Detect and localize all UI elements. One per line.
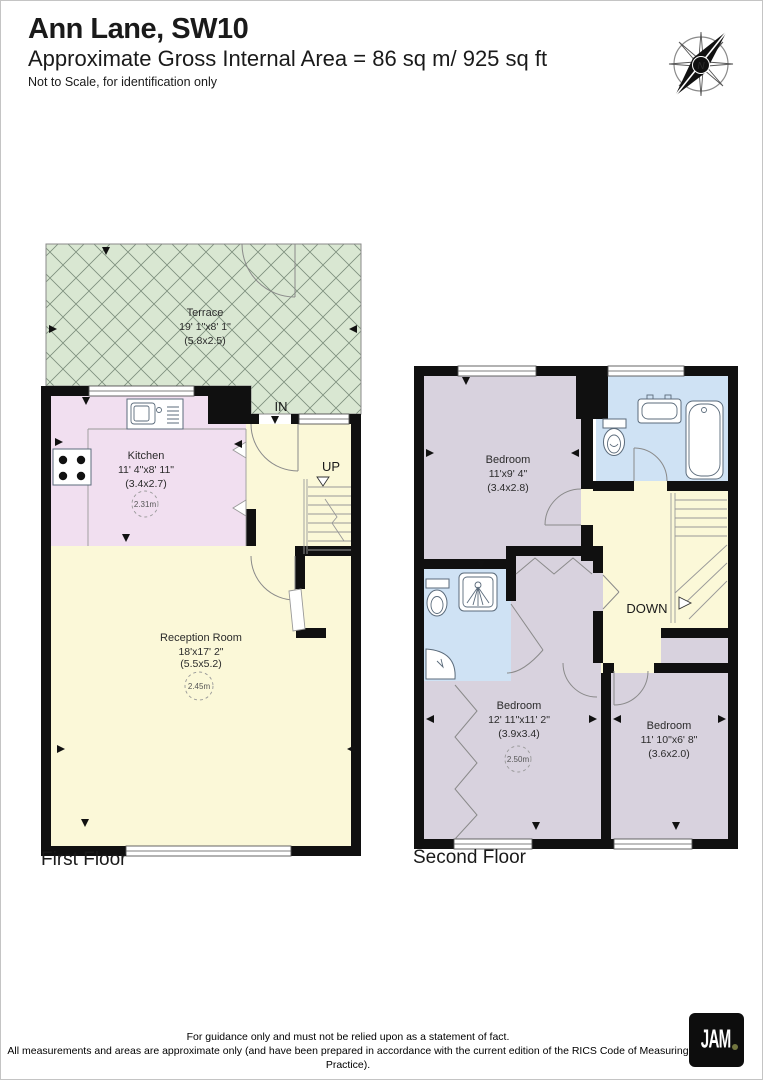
reception-dims-ft: 18'x17' 2" bbox=[178, 646, 223, 658]
bedroom1-window bbox=[458, 366, 536, 376]
terrace-dims-m: (5.8x2.5) bbox=[184, 335, 225, 347]
reception-window bbox=[126, 846, 291, 856]
bedroom1-dims-ft: 11'x9' 4" bbox=[489, 468, 528, 480]
scale-note: Not to Scale, for identification only bbox=[28, 75, 217, 89]
kitchen-name: Kitchen bbox=[128, 450, 165, 462]
room-reception bbox=[51, 546, 351, 846]
bedroom3-name: Bedroom bbox=[647, 720, 692, 732]
bedroom3-window bbox=[614, 839, 692, 849]
basin-icon bbox=[638, 395, 681, 423]
bedroom2-name: Bedroom bbox=[497, 700, 542, 712]
bedroom3-dims-m: (3.6x2.0) bbox=[648, 748, 689, 760]
sink-icon bbox=[127, 399, 183, 429]
terrace-dims-ft: 19' 1"x8' 1" bbox=[179, 321, 231, 333]
bedroom1-dims-m: (3.4x2.8) bbox=[487, 482, 528, 494]
kitchen-height: 2.31m bbox=[134, 500, 157, 509]
reception-height: 2.45m bbox=[188, 682, 211, 691]
toilet2-icon bbox=[426, 579, 449, 616]
footer-disclaimer: For guidance only and must not be relied… bbox=[1, 1030, 695, 1072]
hob-icon bbox=[53, 449, 91, 485]
stairs-down-label: DOWN bbox=[626, 601, 667, 616]
compass-north-label: N bbox=[697, 61, 705, 72]
second-floor-plan: Bedroom 11'x9' 4" (3.4x2.8) DOWN Bedroom… bbox=[409, 361, 743, 853]
terrace-name: Terrace bbox=[187, 307, 224, 319]
compass-icon: N bbox=[665, 23, 739, 103]
floorplan-page: Ann Lane, SW10 Approximate Gross Interna… bbox=[0, 0, 763, 1080]
footer-line2: All measurements and areas are approxima… bbox=[1, 1044, 695, 1072]
bath-icon bbox=[686, 401, 723, 479]
page-subtitle: Approximate Gross Internal Area = 86 sq … bbox=[28, 46, 547, 72]
stairs-up-label: UP bbox=[322, 459, 340, 474]
shower-icon bbox=[459, 573, 497, 611]
bedroom3-dims-ft: 11' 10"x6' 8" bbox=[641, 734, 698, 746]
kitchen-dims-ft: 11' 4"x8' 11" bbox=[118, 464, 174, 476]
entry-label: IN bbox=[275, 399, 288, 414]
bedroom2-dims-ft: 12' 11"x11' 2" bbox=[488, 714, 550, 726]
bedroom1-name: Bedroom bbox=[486, 454, 531, 466]
page-title: Ann Lane, SW10 bbox=[28, 13, 248, 46]
jam-logo: JAM bbox=[689, 1013, 744, 1067]
second-floor-label: Second Floor bbox=[413, 847, 526, 869]
first-floor-plan: Terrace 19' 1"x8' 1" (5.8x2.5) IN UP Kit… bbox=[37, 239, 377, 861]
bathroom-window bbox=[608, 366, 684, 376]
bedroom2-height: 2.50m bbox=[507, 755, 530, 764]
bedroom2-dims-m: (3.9x3.4) bbox=[498, 728, 539, 740]
first-floor-label: First Floor bbox=[41, 849, 127, 871]
entry-window bbox=[299, 414, 349, 424]
jam-logo-text: JAM bbox=[701, 1025, 731, 1055]
room-vestibule bbox=[506, 546, 603, 663]
reception-name: Reception Room bbox=[160, 632, 242, 644]
room-bedroom2-entry bbox=[511, 663, 601, 681]
footer-line1: For guidance only and must not be relied… bbox=[1, 1030, 695, 1044]
toilet-icon bbox=[603, 419, 626, 456]
kitchen-dims-m: (3.4x2.7) bbox=[125, 478, 166, 490]
jam-logo-dot bbox=[732, 1044, 738, 1050]
reception-dims-m: (5.5x5.2) bbox=[180, 658, 221, 670]
kitchen-window bbox=[89, 386, 194, 396]
room-bedroom3-top bbox=[661, 638, 728, 663]
